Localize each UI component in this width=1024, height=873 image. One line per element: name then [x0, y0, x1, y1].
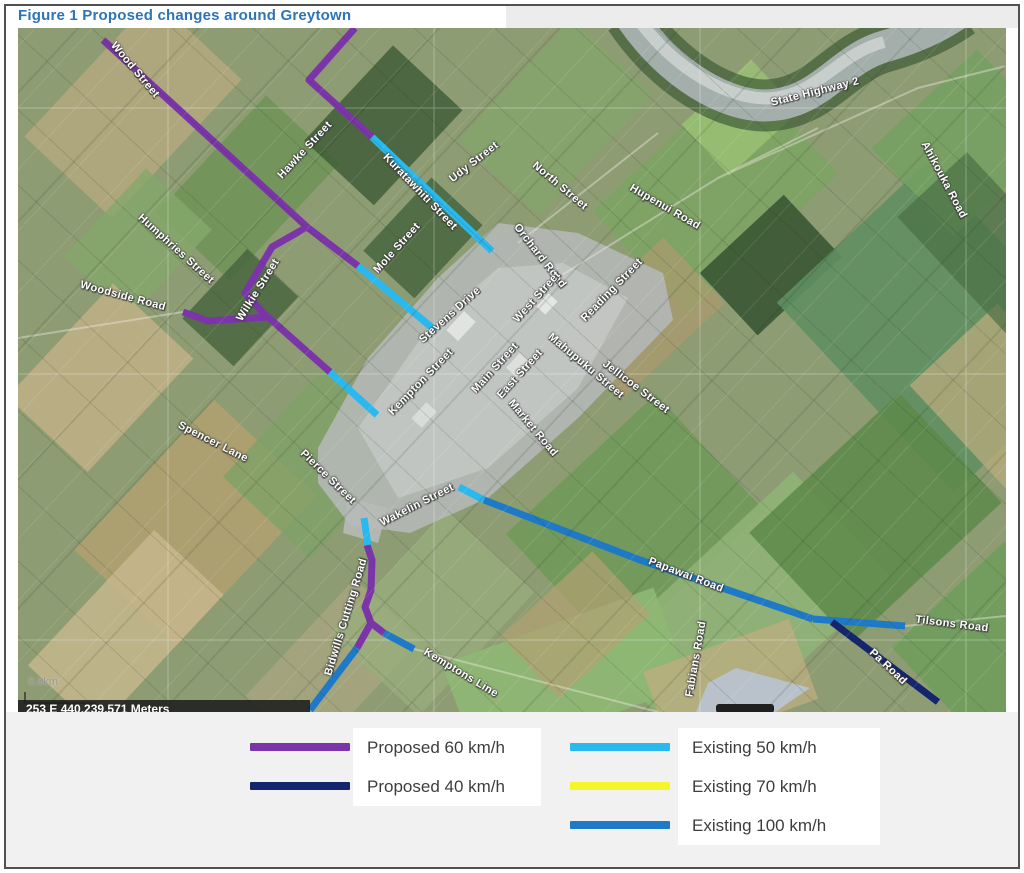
legend-row-existing-100-km-h: Existing 100 km/h: [6, 806, 1018, 845]
legend-labelbox-existing-50: Existing 50 km/h: [678, 728, 880, 767]
map-backdrop: [18, 28, 1006, 712]
legend-row-existing-70-km-h: Existing 70 km/h: [6, 767, 1018, 806]
legend-swatch-existing-100: [570, 821, 670, 829]
legend-row-existing-50-km-h: Existing 50 km/h: [6, 728, 1018, 767]
coordinate-readout: 253 E 440,239,571 Meters: [18, 700, 310, 712]
legend-label-existing-100: Existing 100 km/h: [692, 816, 826, 836]
route-wilkie-street-south: [268, 317, 330, 372]
map-widget-bar: [716, 704, 774, 712]
legend-swatch-existing-50: [570, 743, 670, 751]
legend-labelbox-existing-100: Existing 100 km/h: [678, 806, 880, 845]
scale-text: 0.6km: [28, 676, 58, 688]
route-south-town-stub: [364, 518, 368, 545]
legend-label-existing-70: Existing 70 km/h: [692, 777, 817, 797]
legend-labelbox-existing-70: Existing 70 km/h: [678, 767, 880, 806]
legend-swatch-existing-70: [570, 782, 670, 790]
legend: Proposed 60 km/hProposed 40 km/hExisting…: [6, 712, 1018, 867]
figure-page: Figure 1 Proposed changes around Greytow…: [0, 0, 1024, 873]
aerial-map: Wood StreetHawke StreetKuratawhiti Stree…: [18, 28, 1006, 712]
figure-frame: Figure 1 Proposed changes around Greytow…: [4, 4, 1020, 869]
legend-label-existing-50: Existing 50 km/h: [692, 738, 817, 758]
figure-title: Figure 1 Proposed changes around Greytow…: [18, 7, 351, 24]
title-background-strip: [506, 6, 1018, 28]
